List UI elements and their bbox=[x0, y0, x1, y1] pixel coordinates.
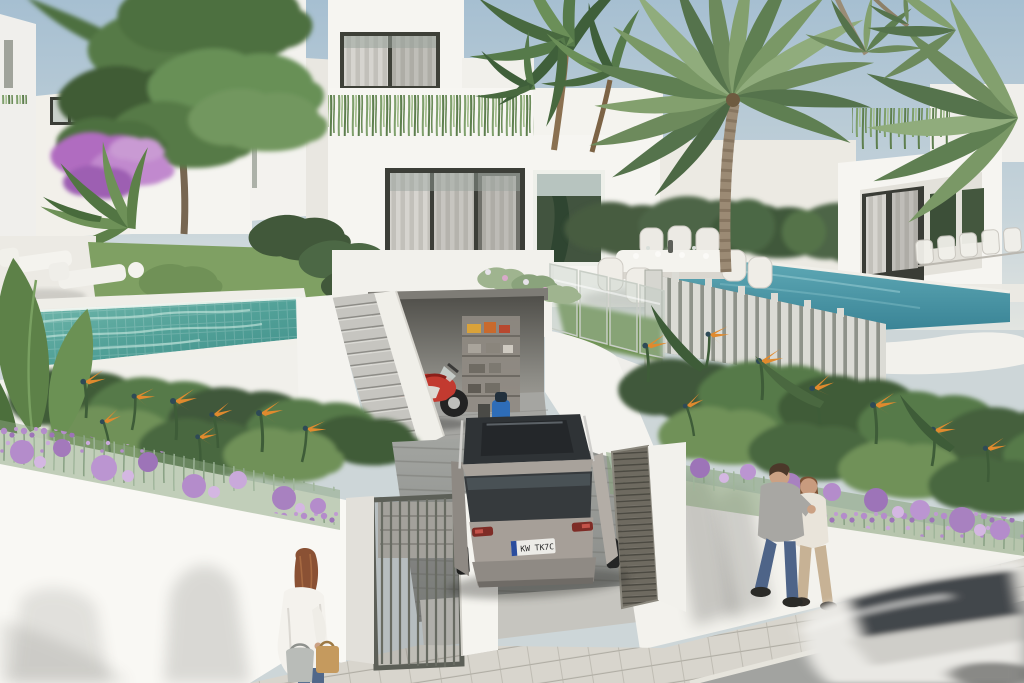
trailing-plants-far-left bbox=[0, 56, 30, 104]
bag-tan bbox=[316, 642, 339, 673]
tote-bag-grey bbox=[286, 645, 314, 683]
couple-walking bbox=[751, 463, 838, 610]
scene-render: KW TK7C bbox=[0, 0, 1024, 683]
eu-strip bbox=[511, 541, 518, 556]
license-plate: KW TK7C bbox=[511, 538, 556, 556]
villa-scene-canvas: KW TK7C bbox=[0, 0, 1024, 683]
gate-pier-left bbox=[346, 496, 374, 664]
right-villa-doors bbox=[862, 186, 924, 287]
upper-window bbox=[340, 32, 440, 90]
storage-shelf bbox=[462, 316, 520, 412]
louvre-door bbox=[612, 442, 686, 612]
